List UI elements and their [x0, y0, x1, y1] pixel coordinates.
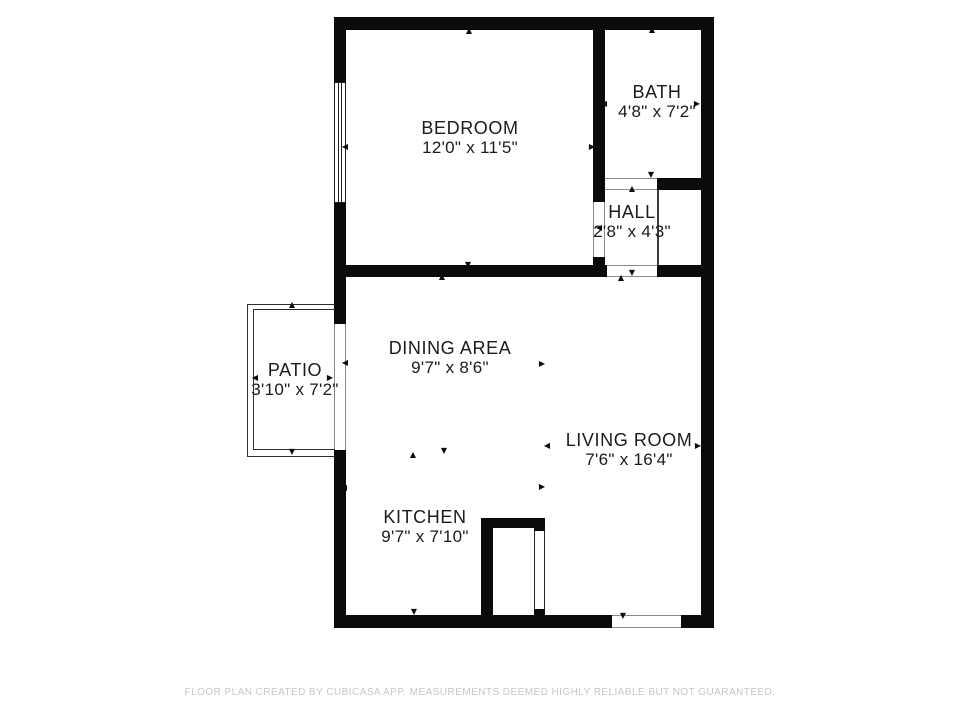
opening-marker-icon: ▼: [648, 171, 654, 179]
dining-dims: 9'7" x 8'6": [389, 358, 512, 378]
living-name: LIVING ROOM: [566, 430, 693, 450]
wall-right: [701, 17, 714, 628]
wall-bedroom-bath-divider: [593, 30, 605, 202]
opening-marker-icon: ▼: [441, 447, 447, 455]
wall-bath-bottom: [657, 178, 701, 190]
bedroom-dims: 12'0" x 11'5": [421, 138, 518, 158]
patio-name: PATIO: [251, 360, 338, 380]
living-dims: 7'6" x 16'4": [566, 450, 693, 470]
wall-left-lower: [334, 450, 346, 628]
hall-dims: 2'8" x 4'3": [593, 222, 671, 242]
room-label-patio: PATIO 3'10" x 7'2": [251, 360, 338, 400]
room-label-bath: BATH 4'8" x 7'2": [618, 82, 696, 122]
room-label-living: LIVING ROOM 7'6" x 16'4": [566, 430, 693, 470]
wall-bottom-right: [681, 615, 714, 628]
wall-left-upper: [334, 17, 346, 82]
wall-living-top-right: [657, 265, 701, 277]
closet-top-stub: [534, 518, 545, 531]
patio-dims: 3'10" x 7'2": [251, 380, 338, 400]
dining-name: DINING AREA: [389, 338, 512, 358]
kitchen-dims: 9'7" x 7'10": [381, 527, 468, 547]
wall-top: [334, 17, 714, 30]
room-label-kitchen: KITCHEN 9'7" x 7'10": [381, 507, 468, 547]
kitchen-name: KITCHEN: [381, 507, 468, 527]
opening-marker-icon: ▼: [289, 448, 295, 456]
bath-dims: 4'8" x 7'2": [618, 102, 696, 122]
opening-marker-icon: ▼: [620, 612, 626, 620]
floor-plan: BEDROOM 12'0" x 11'5" BATH 4'8" x 7'2" H…: [0, 0, 960, 720]
opening-marker-icon: ▲: [439, 273, 445, 281]
opening-marker-icon: ◀: [544, 442, 550, 450]
opening-marker-icon: ▶: [539, 483, 545, 491]
room-label-dining: DINING AREA 9'7" x 8'6": [389, 338, 512, 378]
wall-bottom-left: [334, 615, 612, 628]
opening-marker-icon: ▼: [629, 269, 635, 277]
opening-marker-icon: ◀: [341, 484, 347, 492]
opening-marker-icon: ▲: [629, 185, 635, 193]
closet-bottom-stub: [534, 609, 545, 615]
closet-left-wall: [481, 518, 493, 615]
opening-marker-icon: ▲: [466, 27, 472, 35]
wall-left-middle: [334, 203, 346, 324]
opening-marker-icon: ▲: [289, 301, 295, 309]
footer-disclaimer: FLOOR PLAN CREATED BY CUBICASA APP. MEAS…: [0, 687, 960, 698]
opening-marker-icon: ▶: [327, 374, 333, 382]
closet-door: [534, 531, 545, 609]
opening-marker-icon: ▲: [410, 451, 416, 459]
bedroom-name: BEDROOM: [421, 118, 518, 138]
opening-marker-icon: ▼: [411, 608, 417, 616]
opening-marker-icon: ◀: [596, 224, 602, 232]
opening-marker-icon: ◀: [342, 143, 348, 151]
room-label-bedroom: BEDROOM 12'0" x 11'5": [421, 118, 518, 158]
opening-marker-icon: ◀: [601, 100, 607, 108]
opening-marker-icon: ▶: [539, 360, 545, 368]
opening-marker-icon: ▲: [649, 26, 655, 34]
opening-marker-icon: ▶: [695, 442, 701, 450]
room-label-hall: HALL 2'8" x 4'3": [593, 202, 671, 242]
opening-marker-icon: ▼: [465, 261, 471, 269]
opening-marker-icon: ◀: [252, 374, 258, 382]
opening-marker-icon: ▶: [589, 143, 595, 151]
opening-marker-icon: ▶: [694, 100, 700, 108]
bath-name: BATH: [618, 82, 696, 102]
opening-marker-icon: ▲: [618, 274, 624, 282]
hall-name: HALL: [593, 202, 671, 222]
opening-marker-icon: ◀: [342, 359, 348, 367]
